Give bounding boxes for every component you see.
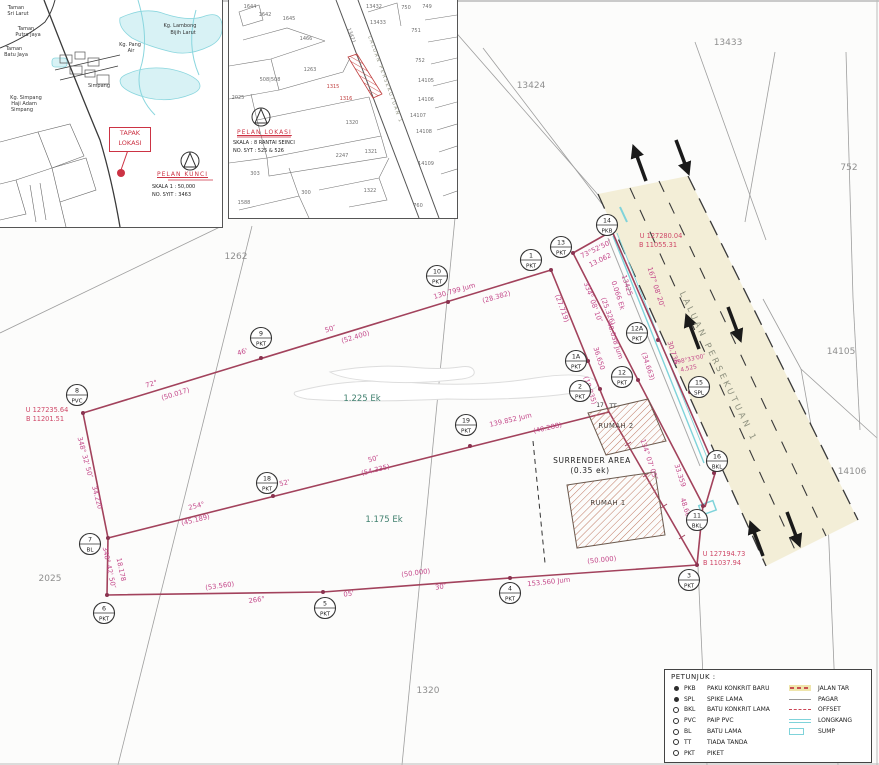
legend-item-sump: SUMP — [789, 726, 865, 737]
station-13-PKT: 13PKT — [551, 237, 576, 258]
measurement-label: U 127194.73 — [703, 550, 746, 558]
dot-open-icon — [673, 750, 679, 756]
legend-code: BL — [684, 728, 704, 735]
station-5-PKT: 5PKT — [315, 590, 336, 619]
measurement-label: U 127280.04 — [640, 232, 683, 240]
station-type: PKT — [505, 597, 516, 603]
station-number: 10 — [433, 269, 441, 276]
measurement-label: 266° — [248, 595, 265, 605]
station-type: PKT — [632, 337, 643, 343]
map-label: 2025 — [232, 95, 245, 101]
station-type: PVC — [71, 399, 82, 405]
measurement-label: 14105 — [827, 347, 856, 357]
map-label: 1644 — [244, 4, 257, 10]
legend-label: JALAN TAR — [818, 685, 849, 692]
offset-icon — [789, 709, 811, 710]
station-number: 2 — [578, 384, 582, 391]
legend-code: TT — [684, 739, 704, 746]
measurement-label: 40.038 Jum — [605, 321, 625, 361]
station-point — [105, 593, 109, 597]
legend-label: OFFSET — [818, 706, 841, 713]
station-point — [81, 411, 85, 415]
station-number: 18 — [263, 476, 271, 483]
map-label: 750 — [401, 5, 411, 11]
measurement-label: 1.225 Ek — [343, 394, 380, 404]
station-18-PKT: 18PKT — [257, 473, 278, 499]
station-number: 16 — [713, 454, 721, 461]
rumah-1-building — [567, 472, 665, 548]
station-4-PKT: 4PKT — [500, 576, 521, 604]
town-blocks — [60, 52, 109, 84]
legend-item-BKL: BKLBATU KONKRIT LAMA — [671, 705, 789, 716]
measurement-label: (53.560) — [205, 580, 235, 592]
jalan-tar-icon — [789, 685, 811, 691]
station-type: PKT — [684, 584, 695, 590]
map-label: Bijih Larut — [170, 30, 195, 36]
map-label: Simpang — [88, 83, 110, 89]
legend-box: PETUNJUK : PKBPAKU KONKRIT BARUSPLSPIKE … — [664, 669, 872, 763]
tapak-line2: LOKASI — [110, 138, 150, 148]
measurement-label: 153.560 Jum — [527, 576, 571, 589]
station-3-PKT: 3PKT — [679, 563, 700, 591]
station-type: PKT — [461, 429, 472, 435]
measurement-label: TT — [608, 403, 617, 410]
north-symbol — [252, 108, 270, 126]
map-label: 14108 — [416, 129, 432, 135]
station-number: 7 — [88, 537, 92, 544]
map-label: Batu Jaya — [4, 52, 28, 58]
station-point — [695, 563, 699, 567]
station-8-PVC: 8PVC — [67, 385, 88, 416]
site-dot — [117, 169, 125, 177]
station-number: 3 — [687, 573, 691, 580]
measurement-label: (45.189) — [180, 513, 210, 528]
measurement-label: (54.335) — [360, 463, 390, 478]
dot-filled-icon — [674, 697, 679, 702]
dot-open-icon — [673, 729, 679, 735]
legend-code: SPL — [684, 696, 704, 703]
measurement-label: 13433 — [714, 38, 743, 48]
measurement-label: 139.852 Jum — [489, 411, 533, 429]
measurement-label: (50.000) — [587, 554, 617, 565]
measurement-label: 1262 — [225, 252, 248, 262]
tapak-line1: TAPAK — [110, 128, 150, 138]
station-number: 13 — [557, 240, 565, 247]
station-point — [259, 356, 263, 360]
station-type: PKT — [556, 251, 567, 257]
measurement-label: 1.175 Ek — [365, 515, 402, 525]
station-point — [656, 338, 660, 342]
measurement-label: 254° — [188, 500, 206, 512]
whiteout-marks — [294, 366, 597, 401]
station-point — [106, 536, 110, 540]
station-type: BKL — [712, 465, 724, 471]
key-plan-title: PELAN KUNCI — [157, 171, 208, 178]
measurement-label: (40.288) — [532, 421, 562, 435]
measurement-label: (34.663) — [640, 351, 657, 381]
map-label: 1588 — [238, 200, 251, 206]
key-plan-inset: TamanSri LarutTamanPutra JayaTamanBatu J… — [0, 0, 223, 228]
station-1-PKT: 1PKT — [521, 250, 554, 273]
station-type: PKT — [99, 617, 110, 623]
legend-label: PAGAR — [818, 696, 838, 703]
map-label: Air — [128, 48, 136, 54]
station-number: 11 — [693, 513, 701, 520]
map-label: 749 — [422, 4, 432, 10]
legend-code: PVC — [684, 717, 704, 724]
legend-item-SPL: SPLSPIKE LAMA — [671, 694, 789, 705]
dot-open-icon — [673, 739, 679, 745]
map-label: Putra Jaya — [15, 32, 40, 38]
map-label: 14105 — [418, 78, 434, 84]
measurement-label: 50″ — [367, 454, 380, 465]
dot-open-icon — [673, 718, 679, 724]
measurement-label: 72° — [144, 378, 158, 389]
station-type: PKT — [262, 487, 273, 493]
legend-label: BATU LAMA — [707, 728, 742, 735]
station-point — [571, 251, 575, 255]
legend-label: BATU KONKRIT LAMA — [707, 706, 770, 713]
measurement-label: 33.359 — [672, 463, 687, 488]
legend-label: SPIKE LAMA — [707, 696, 743, 703]
legend-code: PKB — [684, 685, 704, 692]
map-label: 13433 — [370, 20, 386, 26]
dot-open-icon — [673, 707, 679, 713]
station-number: 1A — [572, 354, 581, 361]
legend-code: BKL — [684, 706, 704, 713]
measurement-label: RUMAH 2 — [598, 422, 633, 430]
station-type: PKT — [432, 280, 443, 286]
tapak-lokasi-box: TAPAK LOKASI — [109, 127, 151, 152]
map-label: 14106 — [418, 97, 434, 103]
map-label: 300 — [301, 190, 311, 196]
measurement-label: 05' — [343, 589, 355, 598]
station-type: PKT — [320, 612, 331, 618]
map-label: 303 — [250, 171, 260, 177]
station-type: BKL — [692, 524, 704, 530]
location-plan-title: PELAN LOKASI — [237, 129, 292, 136]
map-label: 752 — [415, 58, 425, 64]
map-label: 1321 — [365, 149, 378, 155]
station-number: 8 — [75, 388, 79, 395]
measurement-label: 36.650 — [591, 346, 606, 371]
map-label: Simpang — [11, 107, 33, 113]
legend-item-PKB: PKBPAKU KONKRIT BARU — [671, 683, 789, 694]
map-label: 1316 — [340, 96, 353, 102]
measurement-label: (28.382) — [481, 289, 511, 305]
measurement-label: B 11037.94 — [703, 559, 741, 567]
measurement-label: 1320 — [417, 686, 440, 696]
station-6-PKT: 6PKT — [94, 593, 115, 624]
station-number: 1 — [529, 253, 533, 260]
station-number: 19 — [462, 418, 470, 425]
map-label: Kg. Lambong — [164, 23, 197, 29]
measurement-label: 14106 — [838, 467, 867, 477]
station-point — [598, 387, 602, 391]
site-marker — [117, 150, 128, 177]
map-label: 508|508 — [260, 77, 281, 83]
map-label: 14109 — [418, 161, 434, 167]
map-label: 1322 — [364, 188, 377, 194]
map-label: 1466 — [300, 36, 313, 42]
measurement-label: B 11201.51 — [26, 415, 64, 423]
north-symbol — [181, 152, 199, 170]
station-1A-PKT: 1APKT — [566, 351, 591, 372]
station-number: 4 — [508, 586, 512, 593]
station-number: 12 — [618, 370, 626, 377]
station-type: PKT — [256, 342, 267, 348]
pagar-icon — [789, 699, 811, 700]
dot-filled-icon — [674, 686, 679, 691]
measurement-label: (52.400) — [340, 329, 370, 345]
measurement-label: 46' — [236, 347, 249, 358]
measurement-label: 348° 42' 50″ — [101, 546, 118, 590]
measurement-label: (27.719) — [553, 293, 571, 323]
measurement-label: U 127235.64 — [26, 406, 69, 414]
station-point — [271, 494, 275, 498]
measurement-label: B 11055.31 — [639, 241, 677, 249]
location-plan-scale: SKALA : 8 RANTAI SEINCI — [233, 140, 295, 146]
measurement-label: 17 — [596, 402, 604, 409]
sump-icon — [789, 728, 804, 735]
longkang-icon — [789, 719, 811, 723]
legend-line-items: JALAN TARPAGAROFFSETLONGKANGSUMP — [789, 683, 865, 759]
legend-item-TT: TTTIADA TANDA — [671, 737, 789, 748]
measurement-label: SURRENDER AREA — [553, 456, 631, 465]
station-number: 5 — [323, 601, 327, 608]
measurement-label: 18.178 — [115, 557, 128, 582]
measurement-label: 752 — [840, 163, 857, 173]
station-number: 14 — [603, 218, 611, 225]
legend-item-pagar: PAGAR — [789, 694, 865, 705]
legend-label: PAIP PVC — [707, 717, 734, 724]
key-plan-sheet: NO. SYIT : 3463 — [152, 192, 191, 198]
legend-label: PIKET — [707, 750, 724, 757]
station-15-SPL: 15SPL — [688, 377, 710, 398]
station-point — [321, 590, 325, 594]
station-point — [636, 378, 640, 382]
station-number: 15 — [695, 380, 703, 387]
legend-item-longkang: LONGKANG — [789, 715, 865, 726]
station-point — [508, 576, 512, 580]
map-label: 2247 — [336, 153, 349, 159]
station-9-PKT: 9PKT — [251, 328, 272, 361]
legend-item-offset: OFFSET — [789, 705, 865, 716]
legend-code: PKT — [684, 750, 704, 757]
legend-title: PETUNJUK : — [671, 673, 865, 681]
legend-point-items: PKBPAKU KONKRIT BARUSPLSPIKE LAMABKLBATU… — [671, 683, 789, 759]
station-point — [446, 300, 450, 304]
location-plan-map: 1644164216451466134321343375074975112635… — [229, 0, 457, 218]
map-label: 13432 — [366, 4, 382, 10]
location-plan-parcels — [229, 3, 457, 218]
measurement-label: 34.220 — [90, 485, 104, 510]
map-label: 1645 — [283, 16, 296, 22]
station-type: BL — [87, 548, 95, 554]
map-label: 1263 — [304, 67, 317, 73]
station-14-PKB: 14PKB — [597, 215, 618, 236]
location-plan-inset: 1644164216451466134321343375074975112635… — [228, 0, 458, 219]
measurement-label: 13424 — [517, 81, 546, 91]
station-type: SPL — [694, 391, 705, 397]
station-number: 6 — [102, 606, 106, 613]
map-label: 751 — [411, 28, 421, 34]
legend-item-PKT: PKTPIKET — [671, 748, 789, 759]
legend-label: LONGKANG — [818, 717, 852, 724]
map-label: 1320 — [346, 120, 359, 126]
station-type: PKT — [571, 365, 582, 371]
measurement-label: 52' — [278, 478, 290, 488]
legend-label: SUMP — [818, 728, 835, 735]
station-number: 9 — [259, 331, 263, 338]
station-point — [701, 504, 705, 508]
measurement-label: (0.35 ek) — [570, 466, 609, 475]
measurement-label: 50″ — [324, 323, 337, 334]
legend-label: TIADA TANDA — [707, 739, 747, 746]
map-label: 760 — [413, 203, 423, 209]
station-type: PKT — [526, 264, 537, 270]
measurement-label: 2025 — [39, 574, 62, 584]
measurement-label: (50.000) — [401, 567, 431, 579]
station-point — [468, 444, 472, 448]
survey-plan-sheet: LALUAN PERSEKUTUAN 1 72°(50.017)46'50″(5… — [0, 0, 879, 765]
map-label: 1315 — [327, 84, 340, 90]
station-type: PKT — [575, 395, 586, 401]
map-label: Sri Larut — [7, 11, 28, 17]
location-plan-sheet: NO. SYT : 525 & 526 — [233, 148, 284, 154]
key-plan-scale: SKALA 1 : 50,000 — [152, 184, 195, 190]
surrender-area-boundary — [533, 441, 545, 563]
measurement-label: 30″ — [435, 582, 448, 592]
map-label: 1642 — [259, 12, 272, 18]
station-type: PKT — [617, 381, 628, 387]
legend-label: PAKU KONKRIT BARU — [707, 685, 769, 692]
map-label: 13421 — [345, 27, 356, 44]
legend-item-jalan-tar: JALAN TAR — [789, 683, 865, 694]
measurement-label: RUMAH 1 — [590, 499, 625, 507]
key-plan-parcels — [0, 124, 96, 227]
legend-item-PVC: PVCPAIP PVC — [671, 715, 789, 726]
station-number: 12A — [631, 326, 644, 333]
map-label: 14107 — [410, 113, 426, 119]
station-point — [549, 268, 553, 272]
legend-item-BL: BLBATU LAMA — [671, 726, 789, 737]
station-type: PKB — [602, 229, 613, 235]
station-19-PKT: 19PKT — [456, 415, 477, 449]
